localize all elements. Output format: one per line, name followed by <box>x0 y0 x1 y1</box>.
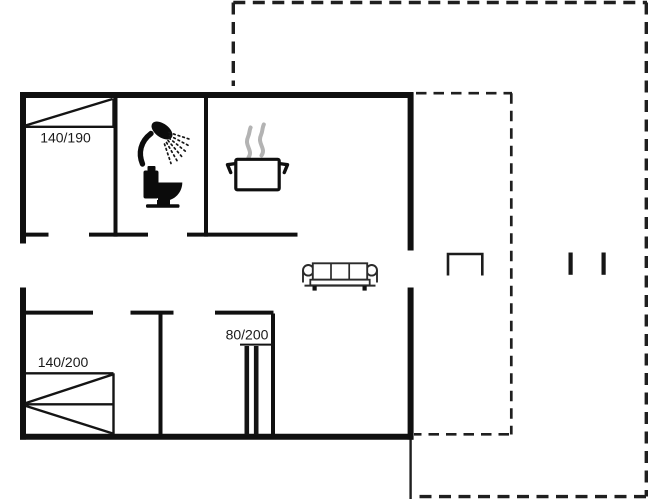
sofa-seat-band <box>310 280 369 286</box>
shower-icon <box>140 118 190 164</box>
steam-wave <box>247 128 251 158</box>
bed-140-190-diagonal <box>26 99 113 126</box>
shower-head <box>148 118 175 143</box>
spray-ray <box>168 141 183 159</box>
sofa-back <box>313 263 367 279</box>
floorplan-svg: 140/190 140/200 80/200 <box>0 0 667 500</box>
bed-label-80-200: 80/200 <box>226 327 269 343</box>
sofa-foot-left <box>313 286 317 291</box>
bed-140-200-diagonal-lower <box>26 406 113 434</box>
bed-140-190 <box>26 99 114 127</box>
toilet-icon <box>144 166 183 208</box>
toilet-base <box>146 204 180 208</box>
bed-140-200 <box>26 373 114 435</box>
sofa-icon <box>303 263 377 290</box>
steam-wave <box>260 125 264 156</box>
toilet-tank <box>144 171 159 199</box>
pot-body <box>236 159 279 190</box>
sofa-foot-right <box>363 286 367 291</box>
shower-arm <box>140 134 151 165</box>
plot-boundary-dashed <box>233 3 647 497</box>
terrace-post-icon <box>571 253 604 275</box>
terrace-outline-dashed <box>414 93 512 434</box>
bed-140-200-diagonal-upper <box>26 375 113 404</box>
bed-label-140-200: 140/200 <box>38 354 89 370</box>
bed-label-140-190: 140/190 <box>40 130 91 146</box>
toilet-button <box>148 166 156 171</box>
floorplan-canvas: 140/190 140/200 80/200 <box>0 0 667 500</box>
steam-icon <box>247 125 264 158</box>
armchair-icon <box>448 254 482 276</box>
cooking-pot-icon <box>228 125 288 190</box>
bed-80-200 <box>240 345 274 435</box>
toilet-bowl <box>158 183 182 202</box>
